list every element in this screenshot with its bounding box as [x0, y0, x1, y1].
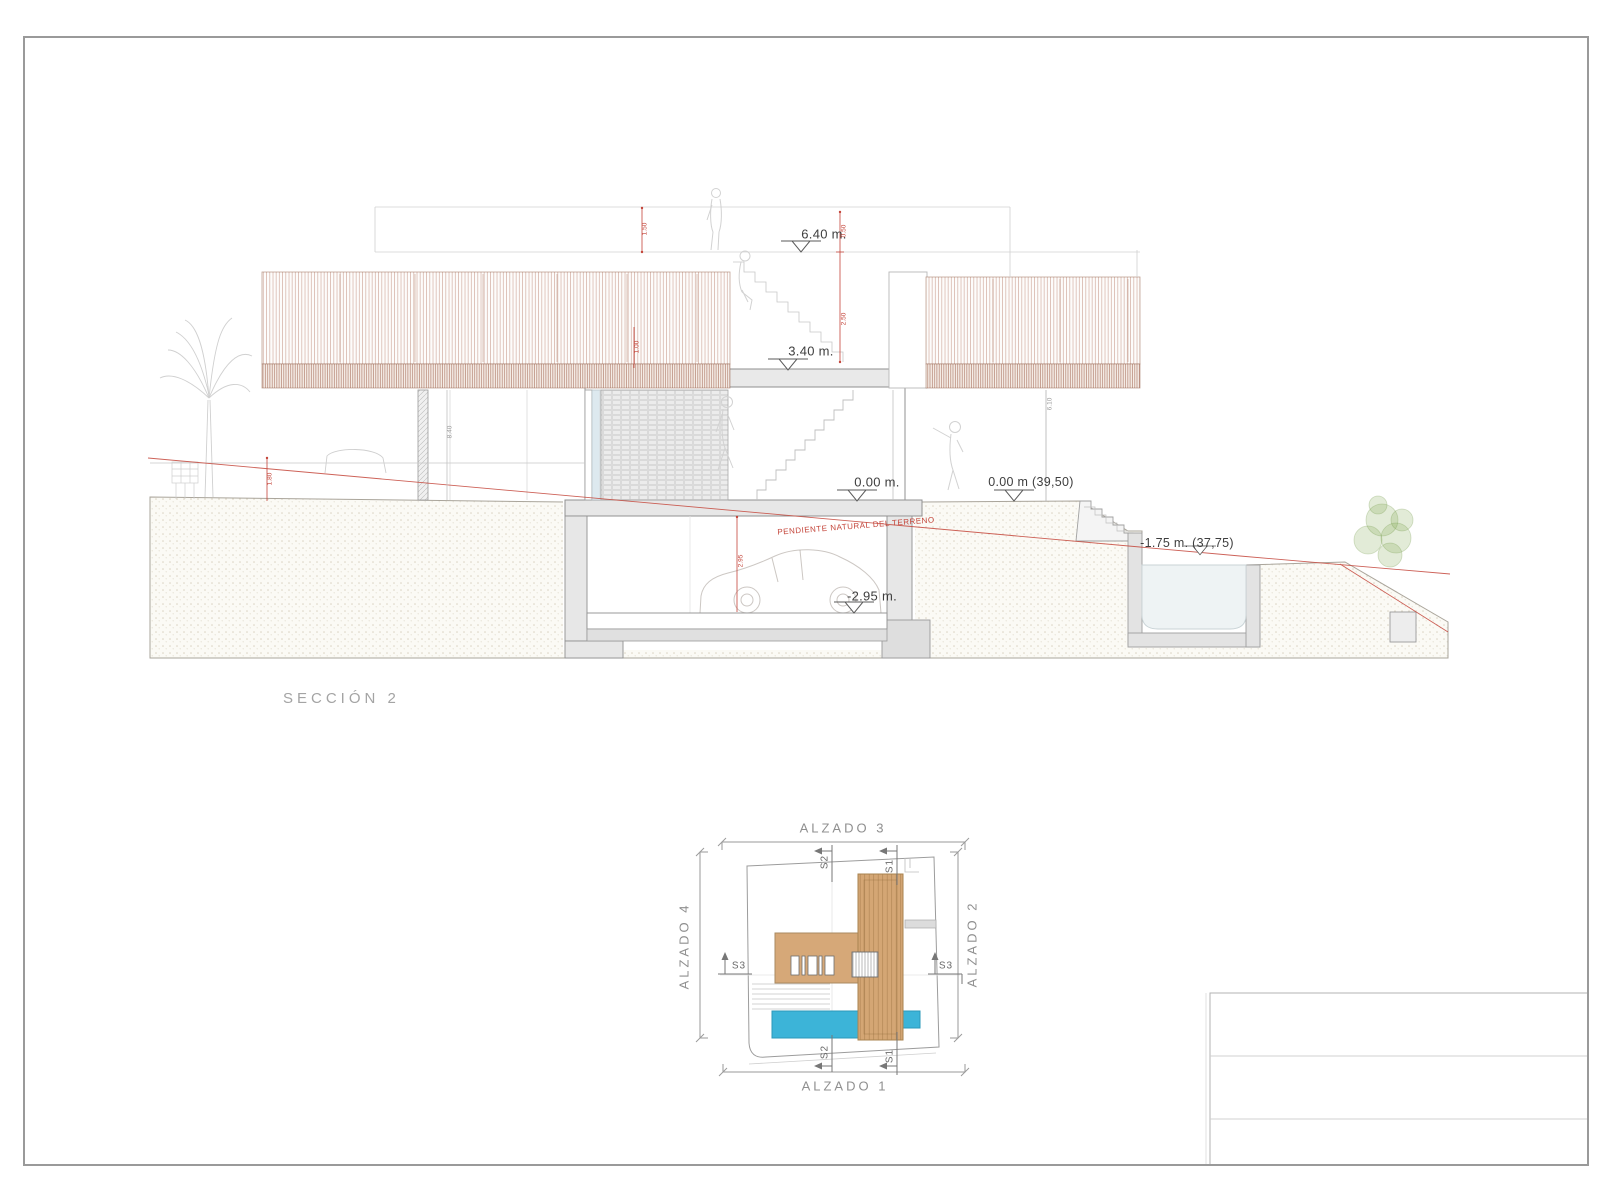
dim-label-250: 2.50: [841, 313, 848, 326]
figure-on-roof: [707, 189, 721, 251]
dim-label-840: 8.40: [447, 426, 454, 439]
dim-label-180: 1.80: [267, 473, 274, 486]
right-slat-volume: [926, 277, 1140, 364]
plan-label-alzado-3: ALZADO 3: [800, 821, 887, 836]
plan-pool-right: [903, 1011, 920, 1028]
drawing-linework: [0, 0, 1600, 1200]
upper-floor-volumes: [262, 272, 1140, 388]
bush: [1354, 496, 1413, 567]
plan-drawing: [696, 838, 969, 1076]
dim-label-050: 0.50: [841, 225, 848, 238]
plan-skylights: [791, 956, 834, 975]
section-marker-label-s3-right: S3: [939, 961, 953, 972]
left-retaining-wall: [565, 516, 587, 641]
pedestal: [1390, 612, 1416, 642]
pool-water: [1142, 565, 1246, 629]
right-footing: [882, 620, 930, 658]
plan-label-alzado-1: ALZADO 1: [802, 1079, 889, 1094]
stone-wall: [601, 390, 728, 500]
plan-label-alzado-2: ALZADO 2: [965, 901, 980, 988]
section-drawing: [148, 189, 1450, 659]
utility-box: [172, 462, 198, 499]
pilotis-column: [418, 390, 428, 500]
basement-floor-slab: [587, 613, 887, 629]
section-marker-label-s2-bottom: S2: [820, 1045, 831, 1059]
section-marker-label-s3-left: S3: [732, 961, 746, 972]
plan-label-alzado-4: ALZADO 4: [677, 903, 692, 990]
title-block: [1206, 993, 1588, 1165]
section-marker-label-s1-bottom: S1: [885, 1049, 896, 1063]
ground-floor: [418, 388, 905, 500]
palm-tree: [160, 318, 252, 497]
plan-pool: [772, 1011, 860, 1038]
ground-floor-slab: [565, 500, 922, 516]
right-retaining-wall: [887, 516, 912, 629]
figure-pointing: [933, 422, 963, 491]
figure-on-roof-stair: [739, 251, 752, 310]
section-marker-label-s1-top: S1: [885, 859, 896, 873]
level-label-ground-absolute: 0.00 m (39,50): [988, 475, 1074, 489]
left-slat-volume: [262, 272, 730, 364]
dim-label-100: 1.00: [634, 341, 641, 354]
level-label-basement: -2.95 m.: [847, 589, 897, 604]
roof-access-volume: [889, 272, 927, 388]
car-behind-wall: [325, 449, 386, 473]
level-label-pool: -1.75 m. (37,75): [1140, 536, 1234, 550]
plan-wall-stub: [905, 920, 936, 928]
level-label-first-floor: 3.40 m.: [788, 344, 833, 359]
dim-label-150: 1.50: [642, 223, 649, 236]
level-label-ground: 0.00 m.: [854, 475, 899, 490]
dim-label-295: 2.95: [738, 555, 745, 568]
left-footing: [565, 641, 623, 658]
section-title: SECCIÓN 2: [283, 690, 400, 707]
drawing-sheet: 6.40 m. 3.40 m. 0.00 m. 0.00 m (39,50) -…: [0, 0, 1600, 1200]
plan-stair: [852, 952, 878, 977]
dim-label-610: 6.10: [1047, 398, 1054, 411]
interior-stair: [757, 390, 853, 500]
section-marker-label-s2-top: S2: [820, 855, 831, 869]
